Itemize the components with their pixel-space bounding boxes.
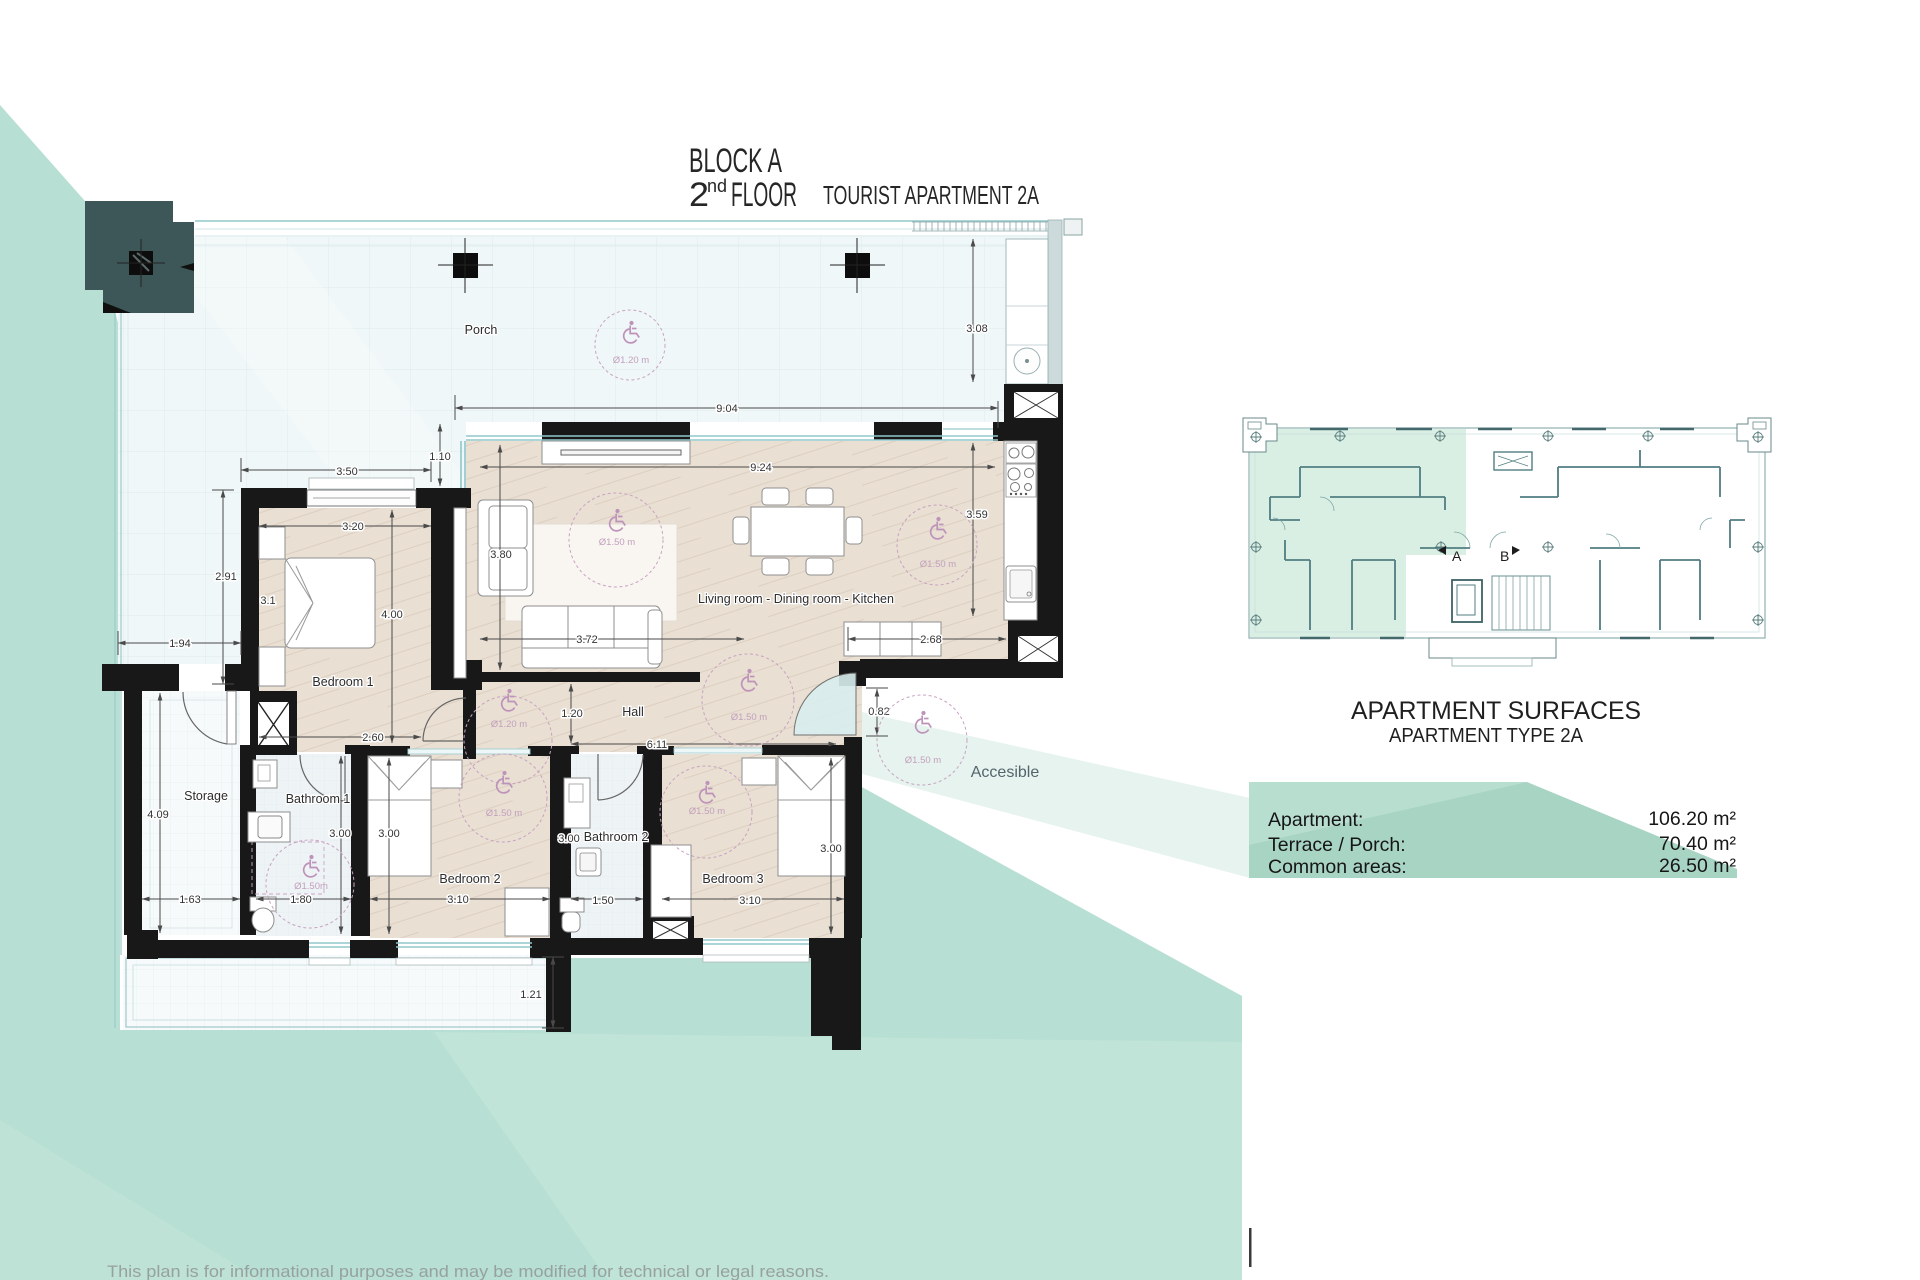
svg-text:2: 2 — [689, 176, 709, 214]
svg-text:Porch: Porch — [465, 323, 498, 337]
svg-text:2.91: 2.91 — [215, 571, 236, 583]
svg-text:9.04: 9.04 — [716, 403, 737, 415]
svg-text:Terrace / Porch:: Terrace / Porch: — [1268, 834, 1406, 856]
svg-text:4.09: 4.09 — [147, 809, 168, 821]
svg-text:1.63: 1.63 — [179, 894, 200, 906]
svg-text:FLOOR: FLOOR — [731, 176, 797, 214]
svg-text:3.00: 3.00 — [820, 843, 841, 855]
svg-text:Ø1.50 m: Ø1.50 m — [599, 537, 636, 548]
svg-text:3.10: 3.10 — [739, 895, 760, 907]
svg-text:APARTMENT TYPE 2A: APARTMENT TYPE 2A — [1389, 725, 1584, 747]
svg-text:This plan is for informational: This plan is for informational purposes … — [107, 1262, 829, 1280]
svg-text:1.20: 1.20 — [561, 708, 582, 720]
svg-text:Bedroom 1: Bedroom 1 — [312, 675, 373, 689]
svg-text:1.21: 1.21 — [520, 989, 541, 1001]
svg-text:1.10: 1.10 — [429, 451, 450, 463]
svg-text:70.40 m²: 70.40 m² — [1659, 833, 1736, 855]
svg-text:Apartment:: Apartment: — [1268, 809, 1363, 831]
svg-text:Ø1.50m: Ø1.50m — [294, 881, 328, 892]
svg-text:Ø1.50 m: Ø1.50 m — [905, 755, 942, 766]
svg-text:Ø1.50 m: Ø1.50 m — [689, 806, 726, 817]
svg-text:Ø1.50 m: Ø1.50 m — [731, 712, 768, 723]
svg-text:APARTMENT SURFACES: APARTMENT SURFACES — [1351, 697, 1641, 725]
svg-text:Bedroom 3: Bedroom 3 — [702, 872, 763, 886]
svg-text:Hall: Hall — [622, 705, 644, 719]
svg-text:3.59: 3.59 — [966, 509, 987, 521]
svg-text:Bathroom 2: Bathroom 2 — [584, 830, 649, 844]
svg-text:1.80: 1.80 — [290, 894, 311, 906]
svg-text:A: A — [1452, 548, 1462, 564]
svg-text:3.50: 3.50 — [336, 466, 357, 478]
svg-text:106.20 m²: 106.20 m² — [1648, 808, 1736, 830]
svg-text:4.00: 4.00 — [381, 609, 402, 621]
svg-text:Storage: Storage — [184, 789, 228, 803]
svg-text:Ø1.50 m: Ø1.50 m — [486, 808, 523, 819]
svg-text:B: B — [1500, 548, 1509, 564]
svg-text:Ø1.20 m: Ø1.20 m — [491, 719, 528, 730]
svg-text:TOURIST APARTMENT 2A: TOURIST APARTMENT 2A — [823, 180, 1039, 210]
svg-text:Ø1.50 m: Ø1.50 m — [920, 559, 957, 570]
svg-text:2.60: 2.60 — [362, 732, 383, 744]
svg-text:3.1: 3.1 — [260, 595, 275, 607]
svg-text:9.24: 9.24 — [750, 462, 771, 474]
svg-text:3.00: 3.00 — [378, 828, 399, 840]
svg-text:3.00: 3.00 — [329, 828, 350, 840]
svg-text:26.50 m²: 26.50 m² — [1659, 855, 1736, 877]
svg-text:nd: nd — [707, 176, 727, 196]
svg-text:3.80: 3.80 — [490, 549, 511, 561]
svg-text:Bedroom 2: Bedroom 2 — [439, 872, 500, 886]
svg-text:1.50: 1.50 — [592, 895, 613, 907]
svg-text:Living room - Dining room - Ki: Living room - Dining room - Kitchen — [698, 592, 894, 606]
svg-text:1.94: 1.94 — [169, 638, 190, 650]
svg-text:2.68: 2.68 — [920, 634, 941, 646]
svg-text:BLOCK A: BLOCK A — [689, 142, 782, 180]
svg-text:3.00: 3.00 — [558, 833, 579, 845]
svg-text:6.11: 6.11 — [647, 739, 668, 751]
svg-text:3.10: 3.10 — [447, 894, 468, 906]
svg-text:Accesible: Accesible — [971, 764, 1040, 781]
svg-text:3.08: 3.08 — [966, 323, 987, 335]
svg-text:3.20: 3.20 — [342, 521, 363, 533]
svg-text:0.82: 0.82 — [868, 706, 889, 718]
svg-text:Common areas:: Common areas: — [1268, 856, 1407, 878]
svg-text:3.72: 3.72 — [576, 634, 597, 646]
svg-text:Ø1.20 m: Ø1.20 m — [613, 355, 650, 366]
